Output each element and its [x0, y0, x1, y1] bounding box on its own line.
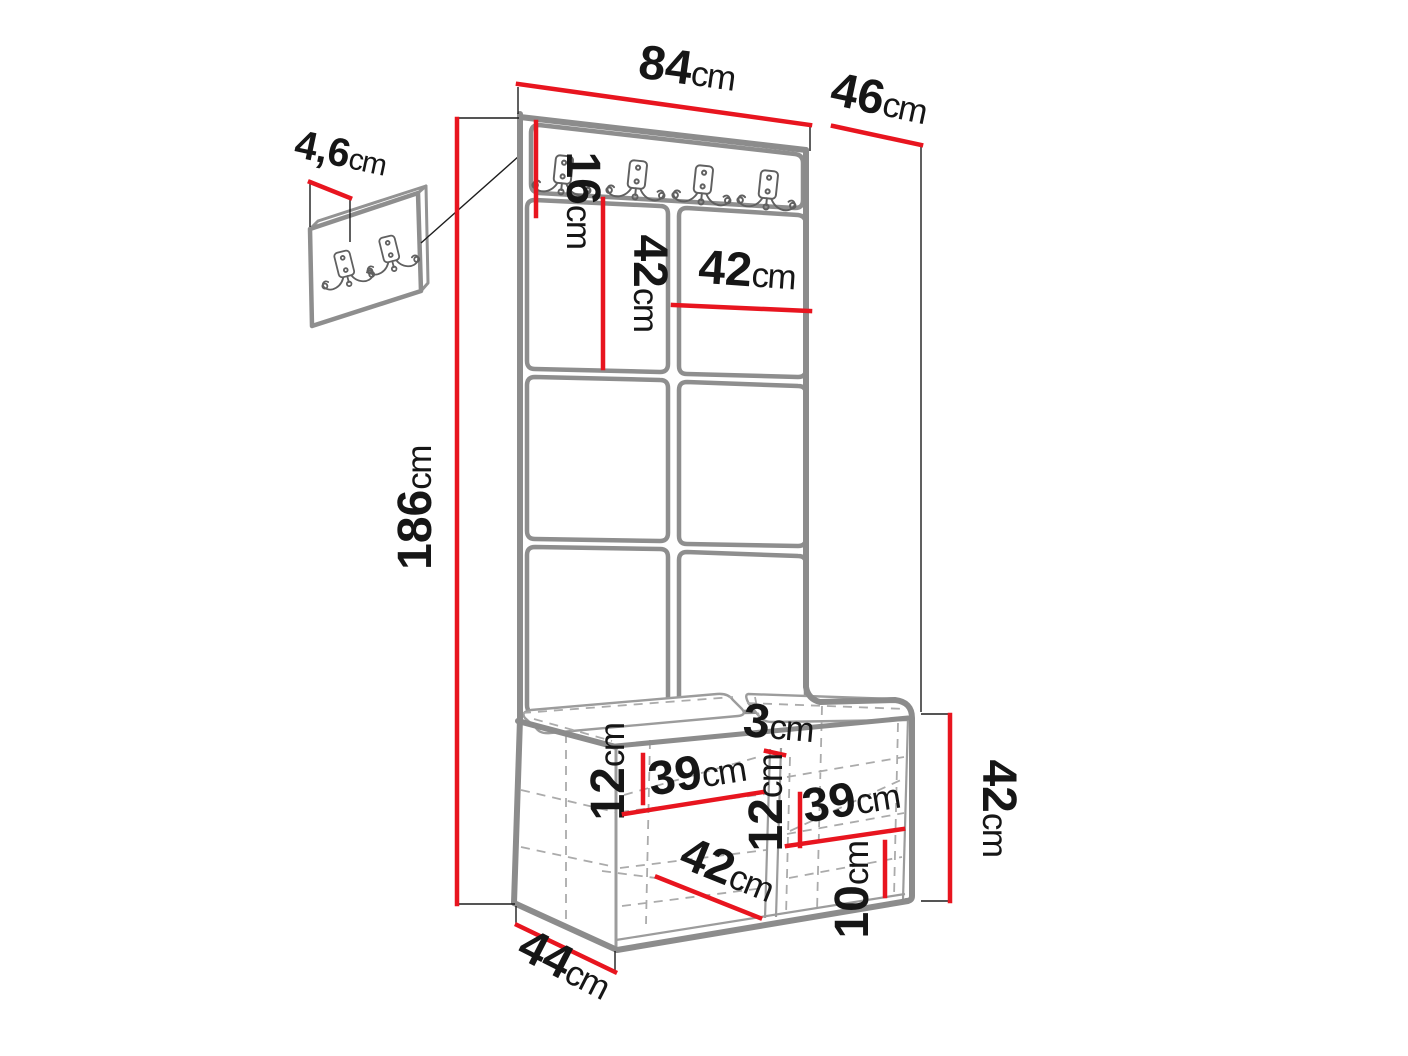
dimension-label: 46cm: [826, 63, 932, 135]
dimension-label: 186cm: [389, 446, 442, 570]
dim-wall-panel-thickness: 4,6cm: [291, 122, 391, 198]
wall-panel-callout: [310, 156, 519, 326]
dim-width-top: 84cm: [518, 36, 810, 125]
wall-panel-front-face: [310, 193, 421, 326]
callout-pointer-line: [421, 156, 519, 243]
dim-bench-height: 42cm: [950, 715, 1025, 901]
dimension-label: 84cm: [635, 36, 738, 102]
dim-depth-top: 46cm: [826, 63, 932, 145]
dimension-label: 42cm: [972, 759, 1025, 856]
diagram-canvas: 84cm 46cm 16cm 4,6cm 42cm 42cm 186cm: [0, 0, 1408, 1056]
furniture-dimension-diagram: 84cm 46cm 16cm 4,6cm 42cm 42cm 186cm: [0, 0, 1408, 1056]
panel-tile: [679, 552, 806, 713]
dimension-label: 4,6cm: [291, 122, 391, 184]
dimension-line: [310, 182, 350, 198]
panel-tile: [527, 547, 668, 715]
panel-tile: [527, 377, 668, 541]
panel-tile: [679, 382, 806, 546]
